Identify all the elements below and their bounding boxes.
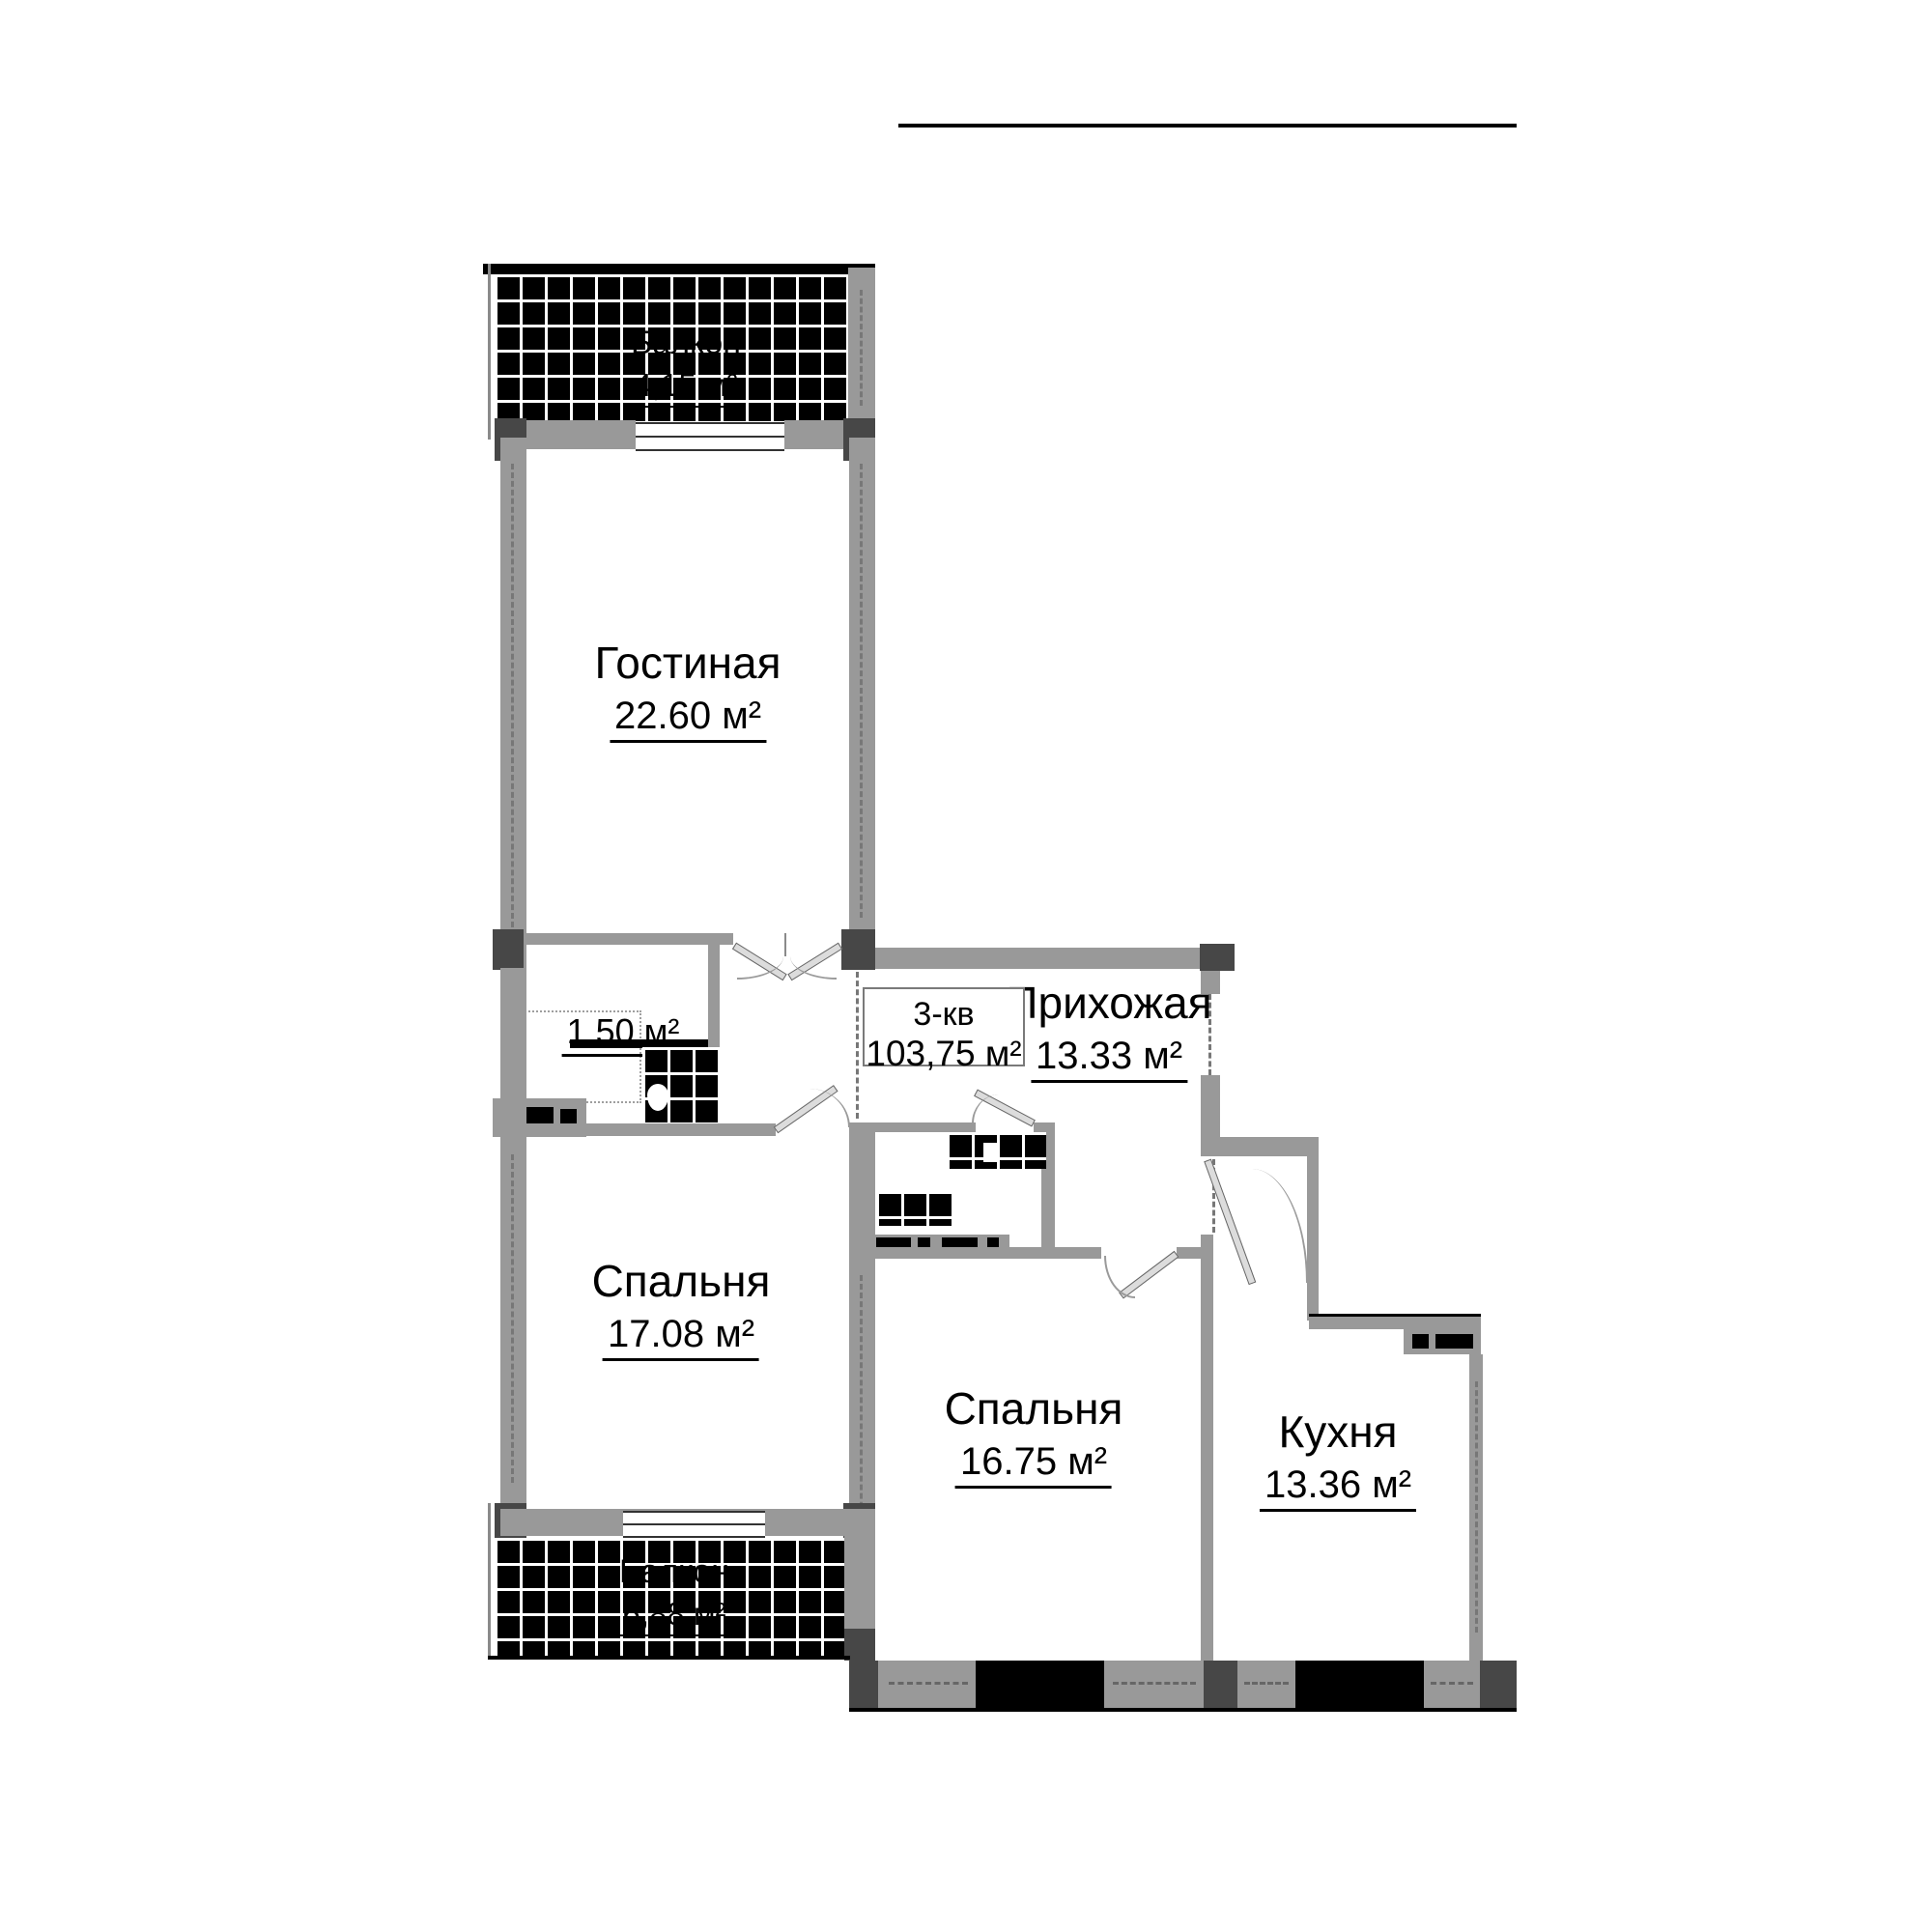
- wall-centerline: [860, 290, 863, 406]
- balcony-name: Балкон: [617, 1553, 730, 1591]
- sink-icon: [983, 1143, 999, 1162]
- wall-segment: [519, 1123, 776, 1136]
- room-name: Прихожая: [1006, 978, 1211, 1029]
- bathroom-hatch: [876, 1191, 954, 1226]
- room-area: 16.75 м²: [955, 1440, 1112, 1489]
- floor-plan: Балкон 4,15 м² Гостиная 22.60 м² Прихожа…: [0, 0, 1932, 1932]
- room-label-bedroom2: Спальня 16.75 м²: [945, 1383, 1123, 1489]
- room-area: 13.36 м²: [1260, 1463, 1416, 1512]
- wall-segment: [1307, 1156, 1319, 1321]
- door-arc: [810, 1089, 850, 1127]
- door-arc: [1252, 1169, 1308, 1283]
- apartment-total-area: 103,75 м²: [865, 1033, 1023, 1075]
- room-area: 17.08 м²: [603, 1313, 759, 1361]
- room-label-bedroom1: Спальня 17.08 м²: [592, 1256, 771, 1361]
- wall-segment: [875, 948, 1200, 969]
- wall-centerline: [1431, 1682, 1473, 1685]
- window-living-room: [636, 422, 784, 451]
- window-kitchen: [1295, 1661, 1424, 1708]
- balcony-bottom-edge: [488, 1656, 850, 1660]
- apartment-type: 3-кв: [865, 997, 1023, 1033]
- balcony-left-edge: [488, 1503, 491, 1660]
- column: [849, 1661, 878, 1708]
- room-area: 13.33 м²: [1031, 1035, 1187, 1083]
- apartment-info-box: 3-кв 103,75 м²: [863, 987, 1025, 1066]
- room-label-hallway: Прихожая 13.33 м²: [1006, 978, 1211, 1083]
- wall-centerline: [889, 1682, 968, 1685]
- room-area: 22.60 м²: [610, 695, 766, 743]
- balcony-name: Балкон: [629, 325, 742, 362]
- balcony-bottom-label: Балкон 6,88 м²: [617, 1553, 730, 1636]
- wall-segment: [1309, 1317, 1481, 1329]
- door-arc: [1104, 1256, 1135, 1298]
- room-name: Гостиная: [594, 638, 781, 689]
- wall-segment: [1201, 1235, 1213, 1661]
- wall-centerline: [1244, 1682, 1289, 1685]
- balcony-left-edge: [488, 264, 491, 440]
- wall-centerline: [511, 464, 514, 927]
- wall-segment: [1201, 1137, 1319, 1156]
- shaft-block: [560, 1109, 577, 1123]
- window-bedroom1: [623, 1511, 765, 1538]
- shaft-block: [1435, 1334, 1473, 1349]
- column: [1480, 1661, 1517, 1708]
- wall-segment: [519, 933, 733, 945]
- room-name: Спальня: [592, 1256, 771, 1307]
- door-arc: [972, 1094, 999, 1123]
- balcony-area: 6,88 м²: [617, 1597, 730, 1636]
- wall-segment: [875, 1122, 976, 1132]
- window-bedroom2: [976, 1661, 1104, 1708]
- column: [841, 929, 875, 970]
- door-tick: [784, 933, 786, 956]
- wall-centerline: [1475, 1381, 1478, 1633]
- wall-centerline: [1113, 1682, 1196, 1685]
- room-label-kitchen: Кухня 13.36 м²: [1260, 1406, 1416, 1512]
- column: [493, 929, 524, 970]
- column: [1200, 944, 1235, 971]
- wall-segment: [708, 945, 720, 1049]
- wall-centerline: [511, 1154, 514, 1483]
- column: [1204, 1661, 1237, 1708]
- wall-segment: [1201, 1075, 1220, 1139]
- hall-boundary-dashed: [856, 972, 859, 1119]
- balcony-top-label: Балкон 4,15 м²: [629, 325, 742, 408]
- wall-edge: [849, 1708, 1517, 1712]
- balcony-area: 4,15 м²: [629, 368, 742, 408]
- balcony-top-border: [483, 264, 875, 274]
- wall-segment: [872, 1247, 1101, 1259]
- header-rule: [898, 124, 1517, 128]
- shaft-block: [1412, 1334, 1429, 1349]
- wall-segment: [1177, 1247, 1201, 1259]
- room-label-living: Гостиная 22.60 м²: [594, 638, 781, 743]
- room-name: Кухня: [1260, 1406, 1416, 1458]
- wall-centerline: [860, 464, 863, 918]
- room-name: Спальня: [945, 1383, 1123, 1435]
